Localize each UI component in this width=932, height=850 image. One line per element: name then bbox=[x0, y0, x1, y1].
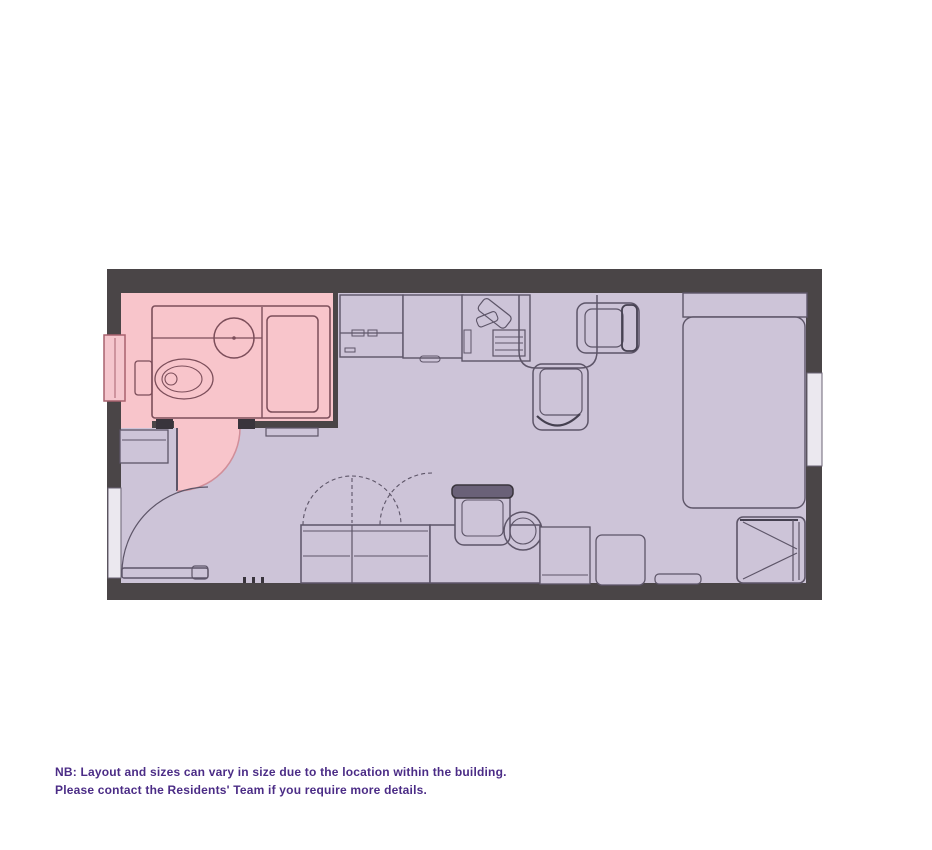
shower-side-shelf bbox=[266, 428, 318, 436]
floor-plan bbox=[0, 0, 932, 850]
kitchen-counter bbox=[403, 295, 463, 362]
wardrobe bbox=[301, 525, 430, 583]
door-leaf bbox=[122, 568, 208, 578]
door-jamb-right bbox=[238, 419, 255, 429]
floor-plan-page: NB: Layout and sizes can vary in size du… bbox=[0, 0, 932, 850]
desk-chair bbox=[452, 485, 513, 545]
storage-unit-square bbox=[596, 535, 645, 585]
door-jamb-left bbox=[156, 419, 173, 429]
disclaimer-line-2: Please contact the Residents' Team if yo… bbox=[55, 781, 507, 799]
chair-backrest bbox=[452, 485, 513, 498]
storage-unit bbox=[540, 527, 590, 584]
right-window bbox=[807, 373, 822, 466]
kitchen-fridge-unit bbox=[340, 295, 403, 357]
headboard-shelf bbox=[683, 293, 807, 317]
bathroom-window bbox=[104, 335, 125, 401]
bed bbox=[683, 293, 807, 508]
wall-bottom bbox=[107, 583, 822, 600]
kitchen bbox=[340, 295, 530, 362]
kitchen-hob-unit bbox=[462, 295, 530, 361]
mattress bbox=[683, 317, 805, 508]
low-shelf bbox=[655, 574, 701, 584]
disclaimer-line-1: NB: Layout and sizes can vary in size du… bbox=[55, 763, 507, 781]
hall-shelf bbox=[120, 430, 168, 463]
disclaimer-note: NB: Layout and sizes can vary in size du… bbox=[55, 763, 507, 799]
left-window bbox=[108, 488, 121, 578]
wall-top bbox=[107, 269, 822, 293]
